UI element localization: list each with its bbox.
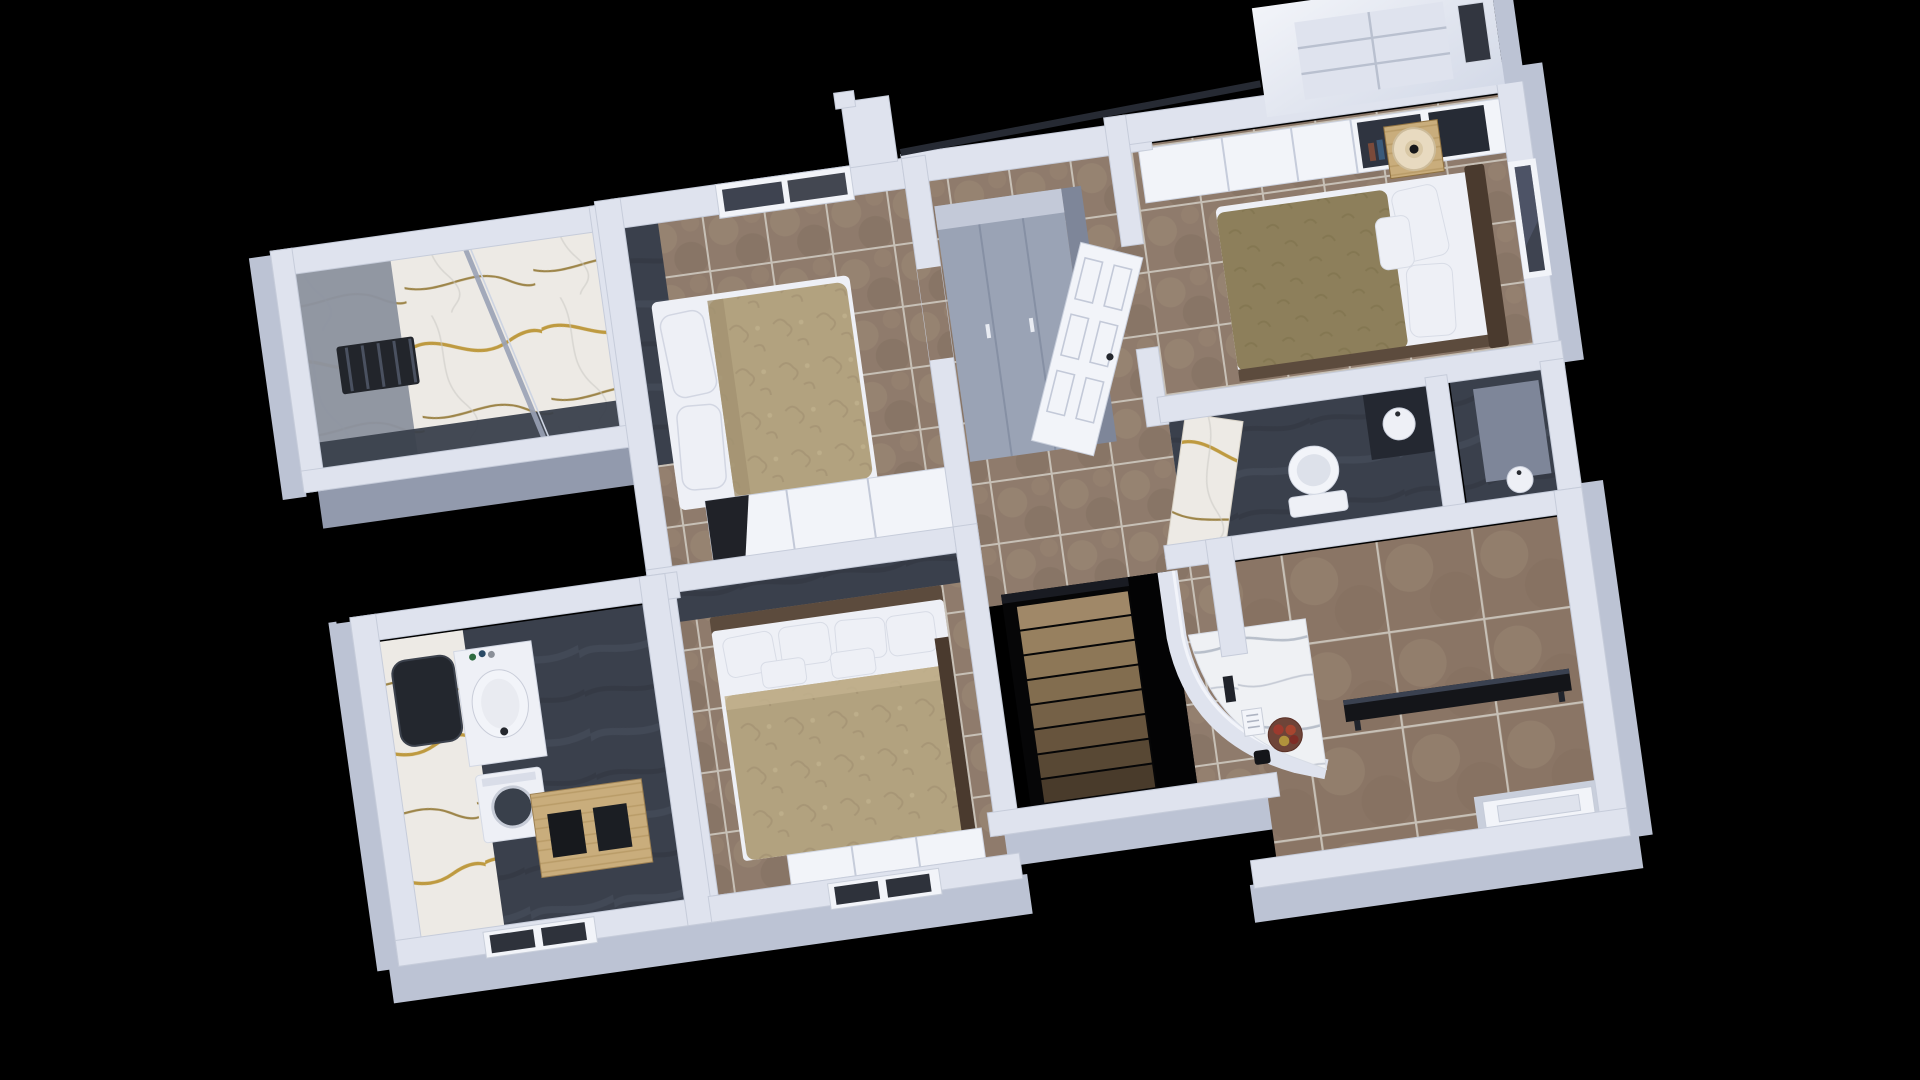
black-mug — [1253, 749, 1271, 765]
pillow — [676, 403, 727, 491]
bedroom-south-furniture — [709, 584, 985, 891]
pillow — [885, 611, 938, 657]
nook-gray-panel — [1473, 380, 1551, 482]
floor-plan-render: 3D dollhouse floor-plan render of an upp… — [0, 0, 1920, 1080]
mirror — [391, 654, 464, 748]
pillow-small — [1374, 215, 1415, 271]
chimney-cap — [834, 91, 856, 110]
pillow-small — [830, 647, 877, 679]
pillow-small — [760, 657, 807, 689]
render-canvas — [0, 0, 1920, 1080]
cabinet-niche — [593, 803, 633, 851]
pillow — [1406, 263, 1457, 338]
oak-cabinet — [530, 779, 653, 878]
desk-books — [1241, 708, 1264, 737]
bed-duvet-olive — [1216, 189, 1409, 371]
cabinet-niche — [547, 809, 587, 857]
